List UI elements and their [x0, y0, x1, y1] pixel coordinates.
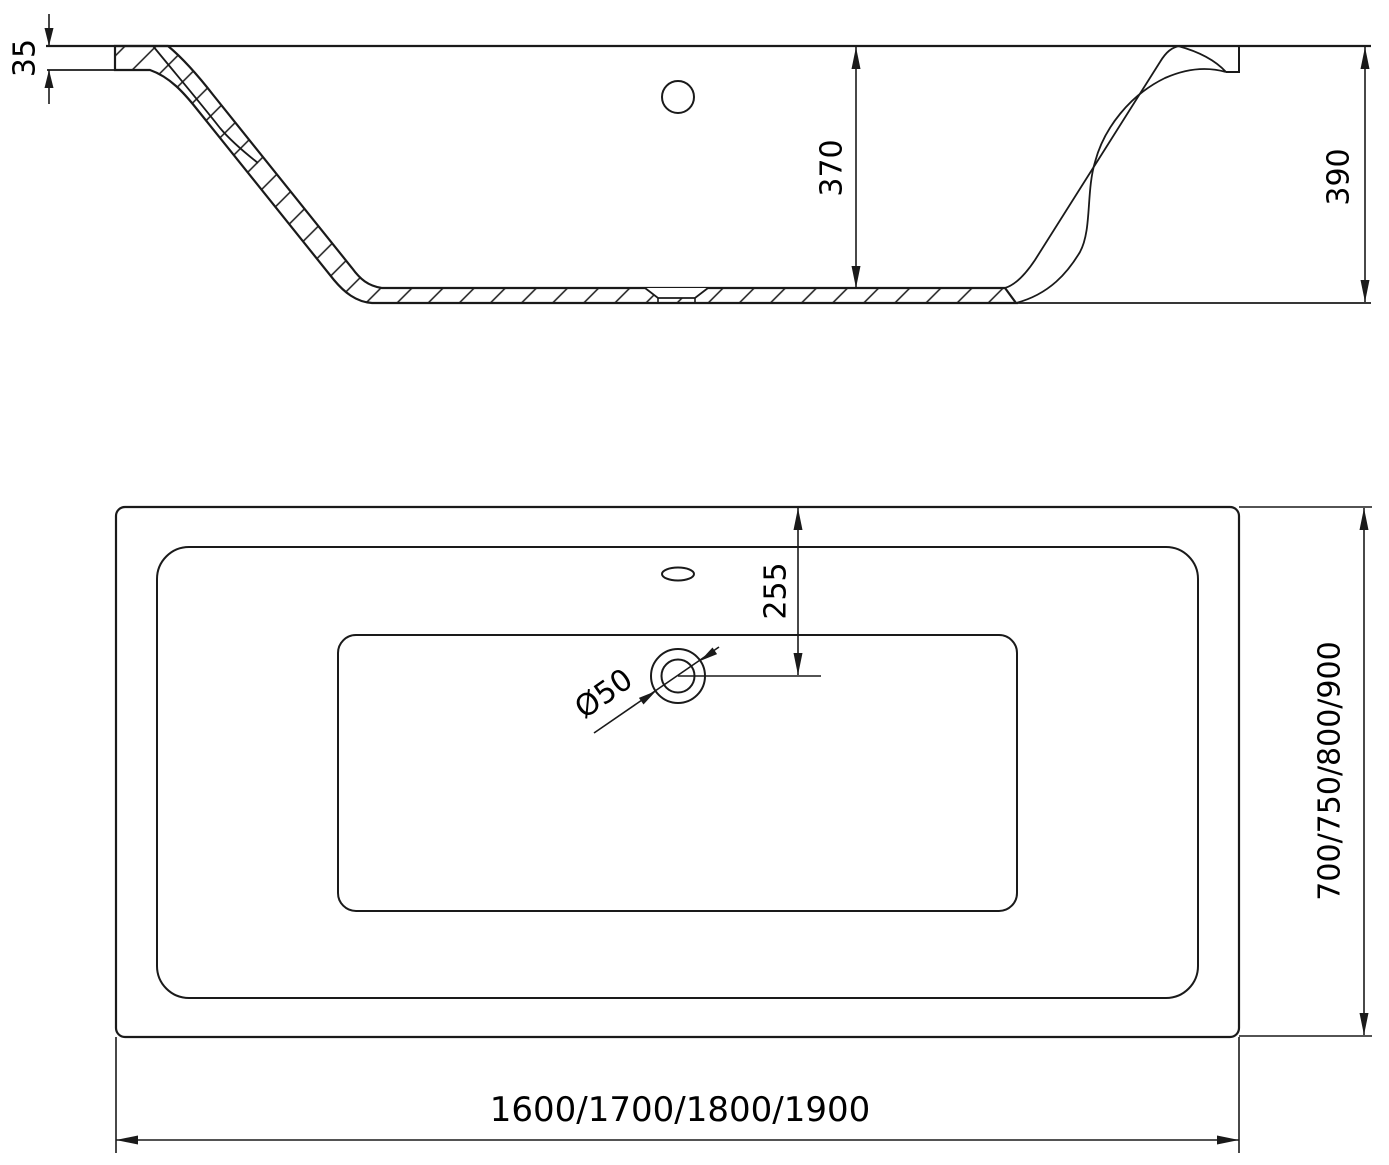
arrow-left-icon	[116, 1136, 138, 1145]
right-wall-outer-line	[1016, 69, 1226, 303]
dim-label-inner-depth: 370	[815, 139, 850, 196]
overflow-hole-section	[662, 81, 694, 113]
dim-label-drain-offset: 255	[759, 562, 794, 619]
technical-drawing: 35 370 390	[0, 0, 1389, 1165]
tub-outer-edge	[116, 507, 1239, 1037]
rim-step	[1226, 46, 1239, 72]
arrow-up-icon	[1361, 47, 1370, 69]
arrow-up-icon	[794, 508, 803, 530]
arrow-down-icon	[852, 266, 861, 288]
arrow-right-icon	[1217, 1136, 1239, 1145]
arrow-up-icon	[852, 47, 861, 69]
dim-label-length-options: 1600/1700/1800/1900	[490, 1090, 870, 1130]
dim-width-options	[1239, 507, 1372, 1036]
arrow-down-icon	[1361, 280, 1370, 302]
arrow-up-icon	[1360, 508, 1369, 530]
dim-label-overall-height: 390	[1322, 148, 1357, 205]
dim-label-width-options: 700/750/800/900	[1313, 641, 1348, 900]
arrow-lower-left-icon	[639, 691, 656, 705]
dim-inner-depth	[852, 47, 861, 288]
drawing-sheet: 35 370 390	[0, 0, 1389, 1165]
section-view: 35 370 390	[8, 14, 1372, 303]
tub-section-profile	[115, 46, 1016, 303]
dim-overall-height	[1361, 47, 1370, 302]
tub-rim-inner-edge	[157, 547, 1198, 998]
right-wall-inner-line	[1005, 46, 1180, 288]
plan-view: 255 Ø50 700/750/800/900 1600/1700/1800/1…	[116, 507, 1372, 1153]
arrow-up-icon	[45, 70, 54, 88]
dim-rim-thickness	[45, 14, 54, 104]
rim-step-chamfer	[1178, 46, 1226, 72]
dim-label-drain-diameter: Ø50	[569, 662, 640, 726]
dim-label-rim-thickness: 35	[8, 39, 43, 77]
arrow-down-icon	[794, 653, 803, 675]
arrow-down-icon	[1360, 1013, 1369, 1035]
overflow-hole-plan	[662, 568, 694, 581]
arrow-down-icon	[45, 28, 54, 46]
dim-drain-offset	[794, 508, 803, 675]
